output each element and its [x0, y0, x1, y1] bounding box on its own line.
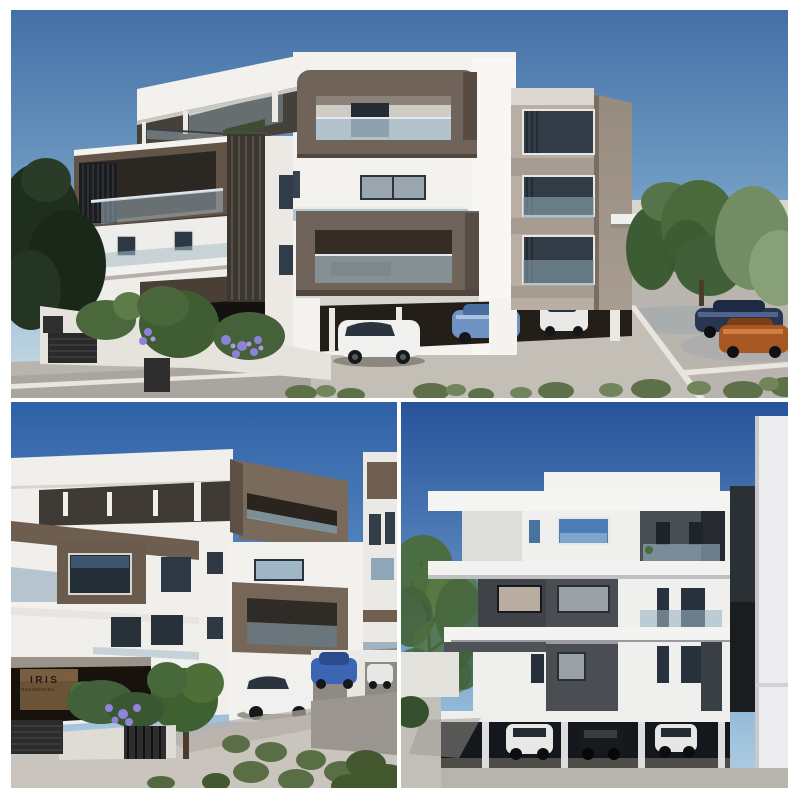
svg-text:IRIS: IRIS — [30, 675, 59, 686]
svg-text:RESIDENCES: RESIDENCES — [21, 687, 55, 692]
